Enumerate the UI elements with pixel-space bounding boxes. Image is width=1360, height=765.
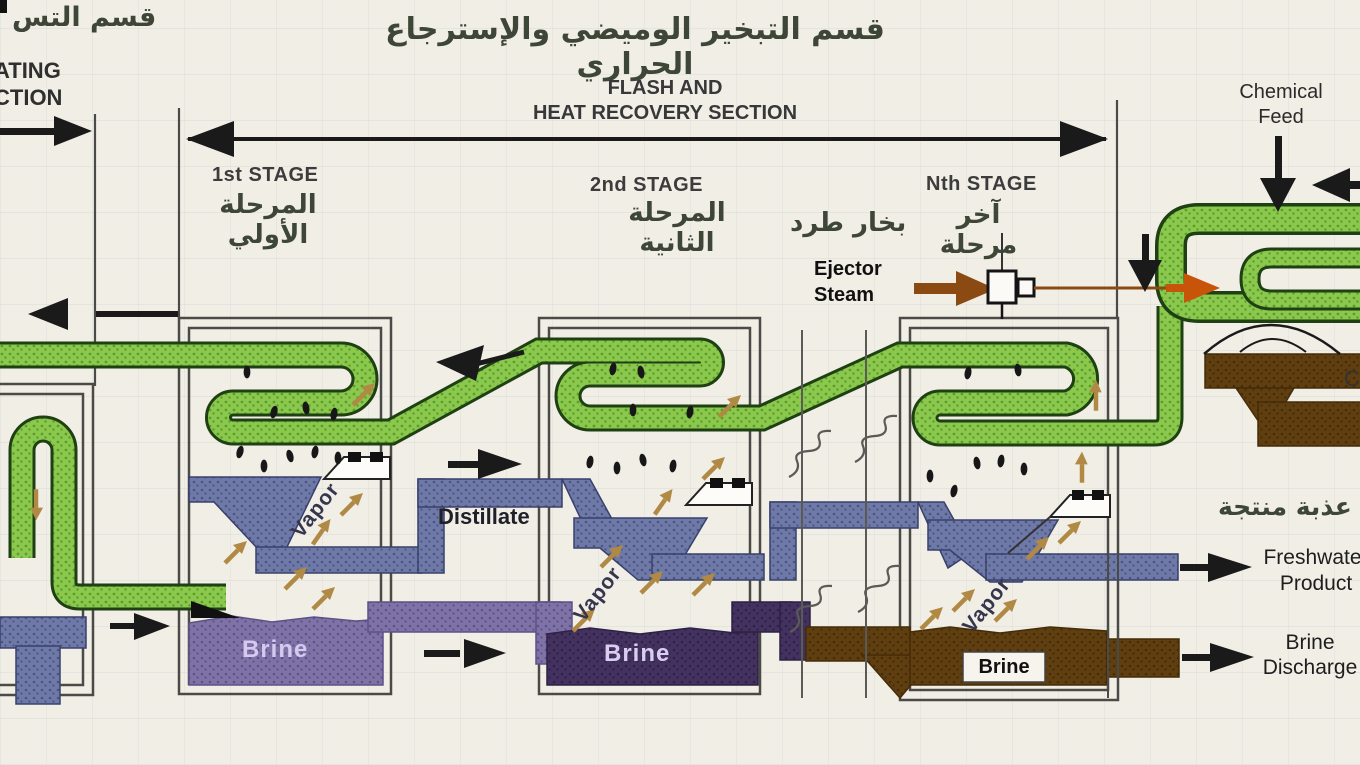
ejector-steam-label-arabic: بخار طرد (790, 208, 906, 238)
stage1-stage2-distillate-channel (418, 479, 562, 507)
chemical-feed-line1: Chemical (1222, 80, 1340, 105)
discharge-line1: Brine (1252, 630, 1360, 655)
stage2-brine-label: Brine (604, 640, 670, 668)
distillate-arrow-shaft (448, 461, 480, 468)
msf-desalination-diagram: { "header": { "title_ar": "قسم التبخير ا… (0, 0, 1360, 765)
stageN-label: Nth STAGE (926, 173, 1037, 196)
freshwater-line2: Product (1256, 571, 1360, 597)
stage1-distillate-drain (256, 547, 422, 573)
heating-section-arrow-head (54, 116, 92, 146)
flash-section-title: FLASH AND HEAT RECOVERY SECTION (480, 76, 850, 126)
ejector-nozzle-icon (1018, 279, 1034, 296)
heating-section-arrow-shaft (0, 128, 56, 135)
stage1-label: 1st STAGE (212, 164, 318, 187)
ejector-steam-label: Ejector Steam (814, 256, 882, 308)
condensate-arrow-head (134, 613, 170, 640)
recycle-tank-inner-arc (1240, 339, 1306, 352)
stage1-brine-label: Brine (242, 636, 308, 664)
distillate-arrow-head (478, 449, 522, 479)
discharge-arrow-head (1210, 643, 1254, 672)
stage2-stageN-distillate-channel (770, 502, 918, 528)
left-section-line2: CTION (0, 84, 62, 111)
brine-heater-tube-outline (22, 429, 226, 597)
recycle-tank-upper (1205, 354, 1360, 388)
brine-discharge-label: Brine Discharge (1252, 630, 1360, 680)
brine-arrow-head (464, 639, 506, 668)
chemical-feed-line2: Feed (1222, 105, 1340, 130)
flash-title-line2: HEAT RECOVERY SECTION (480, 101, 850, 126)
recycle-arrow-shaft (96, 311, 178, 317)
seawater-in-arrow-head (1312, 168, 1350, 202)
ejector-line1: Ejector (814, 256, 882, 282)
scan-corner-mark (0, 0, 7, 13)
left-section-line1: ATING (0, 57, 62, 84)
distillate-label: Distillate (438, 504, 530, 530)
freshwater-arrow-head (1208, 553, 1252, 582)
freshwater-line1: Freshwater (1256, 545, 1360, 571)
stage1-label-arabic: المرحلة الأولي (198, 190, 338, 250)
tube-flow-arrow-head (436, 345, 484, 381)
flash-span-left-arrowhead (186, 121, 234, 157)
ejector-steam-arrow-shaft (914, 283, 960, 294)
stage2-label-arabic: المرحلة الثانية (602, 198, 752, 258)
chemical-feed-arrow-shaft (1275, 136, 1282, 182)
recycle-tank-lower (1258, 402, 1360, 446)
chemical-feed-label: Chemical Feed (1222, 80, 1340, 130)
ejector-device-icon (988, 271, 1016, 303)
heater-condensate-drop (16, 646, 60, 704)
stage2-label: 2nd STAGE (590, 174, 703, 197)
flash-span-right-arrowhead (1060, 121, 1108, 157)
page-title-arabic: قسم التبخير الوميضي والإسترجاع الحراري (385, 12, 885, 82)
stage1-stage2-brine-channel (368, 602, 560, 632)
rejection-coil-inner (1250, 258, 1360, 300)
ejector-line2: Steam (814, 282, 882, 308)
heater-condensate-channel (0, 617, 86, 648)
freshwater-product-label: Freshwater Product (1256, 545, 1360, 597)
stageN-label-arabic: آخر مرحلة (916, 200, 1041, 260)
edge-text-fragment: C (1344, 366, 1360, 392)
recycle-arrow-head (28, 298, 68, 330)
makeup-down-arrow-shaft (1142, 234, 1149, 264)
stageN-brine-label: Brine (963, 656, 1045, 679)
left-section-title: ATING CTION (0, 57, 62, 111)
discharge-line2: Discharge (1252, 655, 1360, 680)
freshwater-label-arabic: مياه عذبة منتجة (1218, 492, 1360, 521)
brine-arrow-shaft (424, 650, 460, 657)
freshwater-outlet-channel (986, 554, 1178, 580)
flash-title-line1: FLASH AND (480, 76, 850, 101)
left-section-title-arabic: قسم التس (12, 2, 156, 33)
